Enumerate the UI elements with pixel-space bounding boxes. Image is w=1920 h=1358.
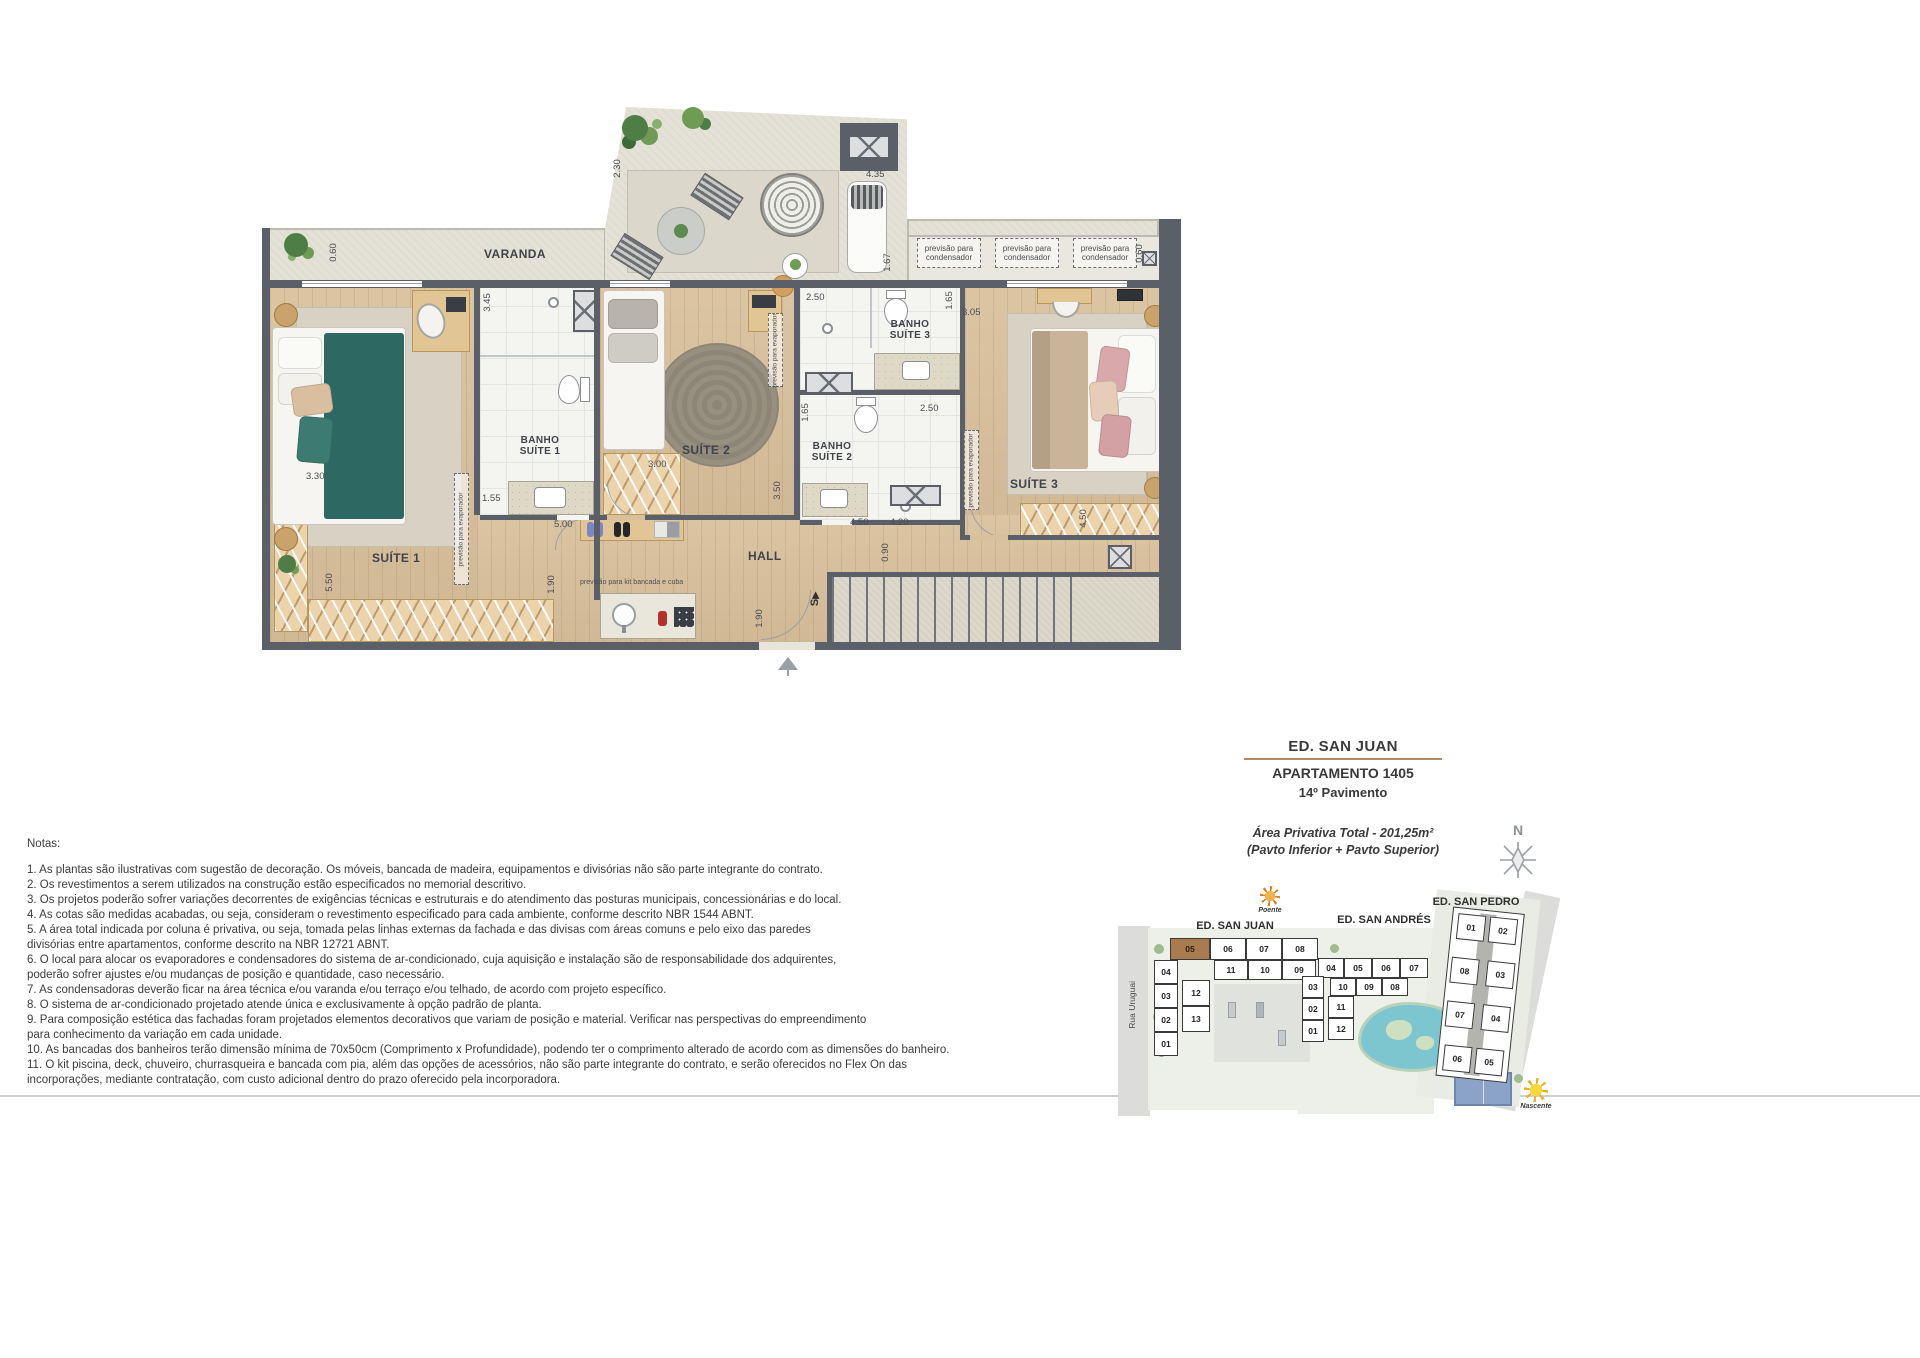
san-pedro-unit-03: 03 <box>1485 960 1516 989</box>
nascente-label: Nascente <box>1510 1103 1562 1110</box>
side-table-plant <box>790 259 801 270</box>
banho1-label: BANHO SUÍTE 1 <box>492 435 588 457</box>
banho1-label-line2: SUÍTE 1 <box>492 446 588 457</box>
dim-4-35: 4.35 <box>866 169 885 180</box>
stairs-landing <box>1074 577 1159 642</box>
dim-1-90-b: 1.90 <box>754 609 765 628</box>
dim-5-00: 5.00 <box>554 519 573 530</box>
condenser-box-1-line2: condensador <box>926 253 972 263</box>
tree <box>1514 1074 1523 1083</box>
san-andres-unit-08: 08 <box>1382 978 1408 996</box>
suite3-closet <box>1020 503 1160 537</box>
floor-number: 14º Pavimento <box>1238 785 1448 800</box>
banho1-shower-head <box>548 297 559 308</box>
shoes-black <box>614 522 621 537</box>
banho1-toilet-tank <box>580 377 590 402</box>
compass-n-label: N <box>1494 822 1542 838</box>
banhos-shaft-xbox <box>805 372 853 394</box>
san-pedro-unit-06: 06 <box>1442 1044 1473 1073</box>
dim-4-50-b: 4.50 <box>1078 509 1089 528</box>
evaporador-box-3-label: previsão para evaporador <box>968 433 975 507</box>
hall-shaft-xbox <box>890 485 941 506</box>
banho2-sink <box>820 489 848 508</box>
suite1-label: SUÍTE 1 <box>372 551 420 565</box>
dim-4-20: 4.20 <box>890 517 909 528</box>
condenser-box-2-line1: previsão para <box>1003 244 1051 254</box>
suite1-nightstand-1 <box>274 303 298 327</box>
nascente-sun-icon <box>1524 1078 1548 1102</box>
dim-5-50: 5.50 <box>324 573 335 592</box>
bancada-sink <box>612 603 636 627</box>
suite2-door-gap <box>607 515 645 520</box>
suite3-window <box>1007 281 1127 287</box>
san-andres-unit-11: 11 <box>1328 996 1354 1018</box>
shelf-towels <box>654 521 680 538</box>
kit-bancada-note: previsão para kit bancada e cuba <box>580 579 683 586</box>
note-line: poderão sofrer ajustes e/ou mudanças de … <box>27 968 1317 983</box>
san-andres-unit-09: 09 <box>1356 978 1382 996</box>
suite3-tv <box>1117 289 1143 301</box>
varanda-plant <box>284 233 308 257</box>
suite3-shaft-xbox <box>1108 545 1132 569</box>
condenser-box-2: previsão para condensador <box>995 238 1059 268</box>
stairs-s-label: S <box>809 599 821 606</box>
compass-rose-icon <box>1494 838 1542 882</box>
banho1-shower-line <box>480 355 594 357</box>
dim-3-30: 3.30 <box>306 471 325 482</box>
dim-0-60-right: 0.60 <box>1134 244 1145 263</box>
san-pedro-unit-04: 04 <box>1480 1004 1511 1033</box>
dim-3-45: 3.45 <box>482 293 493 312</box>
page: previsão para condensador previsão para … <box>0 0 1920 1358</box>
table-plant <box>674 224 688 238</box>
suite1-laptop <box>446 297 466 312</box>
floor-plan: previsão para condensador previsão para … <box>262 85 1192 685</box>
note-line: 11. O kit piscina, deck, chuveiro, churr… <box>27 1058 1317 1073</box>
banho3-label-line1: BANHO <box>880 319 940 330</box>
note-line: 3. Os projetos poderão sofrer variações … <box>27 893 1317 908</box>
suite1-nightstand-2 <box>274 527 298 551</box>
page-bottom-rule <box>0 1095 1920 1097</box>
suite1-blanket <box>324 333 404 519</box>
suite1-plant <box>278 555 296 573</box>
san-andres-unit-06: 06 <box>1372 958 1400 978</box>
note-line: 5. A área total indicada por coluna é pr… <box>27 923 1317 938</box>
banho3-toilet-tank <box>886 290 906 299</box>
banho3-shower-head <box>822 323 833 334</box>
condenser-box-2-line2: condensador <box>1004 253 1050 263</box>
tree <box>1330 944 1339 953</box>
note-line: divisórias entre apartamentos, conforme … <box>27 938 1317 953</box>
compass: N <box>1494 822 1542 884</box>
dim-1-65-banho3: 1.65 <box>944 291 955 310</box>
entry-arrow-stem <box>787 670 789 676</box>
varanda-corridor-floor <box>266 228 606 283</box>
banho1-shaft-xbox <box>573 290 596 332</box>
dim-0-60-left: 0.60 <box>328 243 339 262</box>
stairs-direction: S▶ <box>809 592 821 606</box>
dim-0-90: 0.90 <box>880 543 891 562</box>
banho3-sink <box>902 361 930 380</box>
condenser-box-3-line1: previsão para <box>1081 244 1129 254</box>
wall-suite1-banho1 <box>474 288 480 515</box>
san-pedro-unit-05: 05 <box>1474 1048 1505 1077</box>
evaporador-box-1: previsão para evaporador <box>454 473 469 585</box>
dim-1-90-a: 1.90 <box>546 575 557 594</box>
terrace-plant-2 <box>682 107 704 129</box>
san-pedro-unit-01: 01 <box>1456 913 1487 942</box>
suite1-pillow-4 <box>296 416 334 465</box>
note-line: para conhecimento da variação em cada un… <box>27 1028 1317 1043</box>
banho1-toilet-bowl <box>558 375 580 404</box>
wall-suite1-hall <box>594 520 600 600</box>
wall-bottom <box>262 642 1170 650</box>
wall-right <box>1159 219 1181 650</box>
note-line: 10. As bancadas dos banheiros terão dime… <box>27 1043 1317 1058</box>
entry-threshold <box>759 642 815 650</box>
dim-1-67: 1.67 <box>882 253 893 272</box>
condenser-box-3: previsão para condensador <box>1073 238 1137 268</box>
suite1-closet-bottom <box>308 599 554 642</box>
san-andres-unit-04: 04 <box>1318 958 1344 978</box>
suite3-pillow-pink-2 <box>1098 414 1132 459</box>
san-pedro-unit-08: 08 <box>1449 957 1480 986</box>
evaporador-box-2: previsão para evaporador <box>768 313 783 387</box>
note-line: incorporações, mediante contratação, com… <box>27 1073 1317 1088</box>
varanda-label: VARANDA <box>484 247 546 261</box>
san-pedro-name: ED. SAN PEDRO <box>1420 896 1532 908</box>
suite1-pillow-1 <box>278 337 322 369</box>
chaise-pillow <box>851 185 883 209</box>
dim-3-05: 3.05 <box>962 307 981 318</box>
banho2-label: BANHO SUÍTE 2 <box>802 441 862 463</box>
suite2-monitor <box>752 295 776 308</box>
entry-arrow-icon <box>778 657 798 670</box>
san-andres-unit-07: 07 <box>1400 958 1428 978</box>
suite2-pillow-1 <box>608 299 658 329</box>
notes-title: Notas: <box>27 838 1317 850</box>
san-andres-unit-12: 12 <box>1328 1018 1354 1040</box>
bancada-red-item <box>658 611 667 626</box>
suite2-window <box>610 281 670 287</box>
dim-2-30: 2.30 <box>612 159 623 178</box>
suite3-door-gap <box>970 535 1008 540</box>
note-line: 4. As cotas são medidas acabadas, ou sej… <box>27 908 1317 923</box>
shoes-sneakers <box>587 522 594 537</box>
banho2-label-line1: BANHO <box>802 441 862 452</box>
suite3-label: SUÍTE 3 <box>1010 477 1058 491</box>
dim-1-55: 1.55 <box>482 493 501 504</box>
suite1-window <box>302 281 422 287</box>
dim-4-50-a: 4.50 <box>850 517 869 528</box>
note-line: 2. Os revestimentos a serem utilizados n… <box>27 878 1317 893</box>
dim-3-50: 3.50 <box>772 481 783 500</box>
banho1-label-line1: BANHO <box>492 435 588 446</box>
dim-2-50-banho3: 2.50 <box>806 292 825 303</box>
banho3-shower-line <box>870 288 872 348</box>
apartment-number: APARTAMENTO 1405 <box>1238 765 1448 781</box>
terrace-plant-1 <box>622 115 648 141</box>
san-pedro-unit-02: 02 <box>1488 916 1519 945</box>
san-andres-unit-10: 10 <box>1330 978 1356 996</box>
building-name: ED. SAN JUAN <box>1238 738 1448 755</box>
stairs-arrow-icon: ▶ <box>810 592 820 599</box>
note-line: 6. O local para alocar os evaporadores e… <box>27 953 1317 968</box>
suite2-label: SUÍTE 2 <box>682 443 730 457</box>
terrace-shaft-xbox <box>848 135 890 159</box>
banho3-label: BANHO SUÍTE 3 <box>880 319 940 341</box>
note-line: 1. As plantas são ilustrativas com suges… <box>27 863 1317 878</box>
wall-stairs-top <box>827 572 1162 577</box>
san-pedro-unit-07: 07 <box>1445 1000 1476 1029</box>
evaporador-box-3: previsão para evaporador <box>964 430 979 510</box>
condenser-box-1: previsão para condensador <box>917 238 981 268</box>
dim-1-65-banho2: 1.65 <box>800 403 811 422</box>
note-line: 9. Para composição estética das fachadas… <box>27 1013 1317 1028</box>
notes-section: Notas: 1. As plantas são ilustrativas co… <box>27 838 1317 1088</box>
evaporador-box-1-label: previsão para evaporador <box>458 492 465 566</box>
wall-left <box>262 228 270 650</box>
wall-stairs-left <box>827 577 832 642</box>
terrace-parapet-strip <box>907 219 1159 237</box>
suite2-pillow-2 <box>608 333 658 363</box>
banho1-sink <box>534 487 566 508</box>
title-underline <box>1244 758 1442 760</box>
hanging-egg-chair <box>760 173 824 237</box>
note-line: 8. O sistema de ar-condicionado projetad… <box>27 998 1317 1013</box>
suite1-pillow-3 <box>290 382 334 417</box>
banho2-toilet-tank <box>856 397 876 406</box>
dim-3-00: 3.00 <box>648 459 667 470</box>
suite3-blanket <box>1032 331 1088 469</box>
hall-label: HALL <box>748 549 782 563</box>
san-andres-unit-05: 05 <box>1344 958 1372 978</box>
condenser-box-3-line2: condensador <box>1082 253 1128 263</box>
evaporador-box-2-label: previsão para evaporador <box>772 313 779 387</box>
san-andres-name: ED. SAN ANDRÉS <box>1322 914 1446 926</box>
banho2-label-line2: SUÍTE 2 <box>802 452 862 463</box>
banho2-door-gap <box>822 520 852 525</box>
bancada-cooktop <box>674 607 694 627</box>
bancada-faucet <box>622 625 626 633</box>
note-line: 7. As condensadoras deverão ficar na áre… <box>27 983 1317 998</box>
dim-2-50-banho2: 2.50 <box>920 403 939 414</box>
banho3-label-line2: SUÍTE 3 <box>880 330 940 341</box>
condenser-box-1-line1: previsão para <box>925 244 973 254</box>
